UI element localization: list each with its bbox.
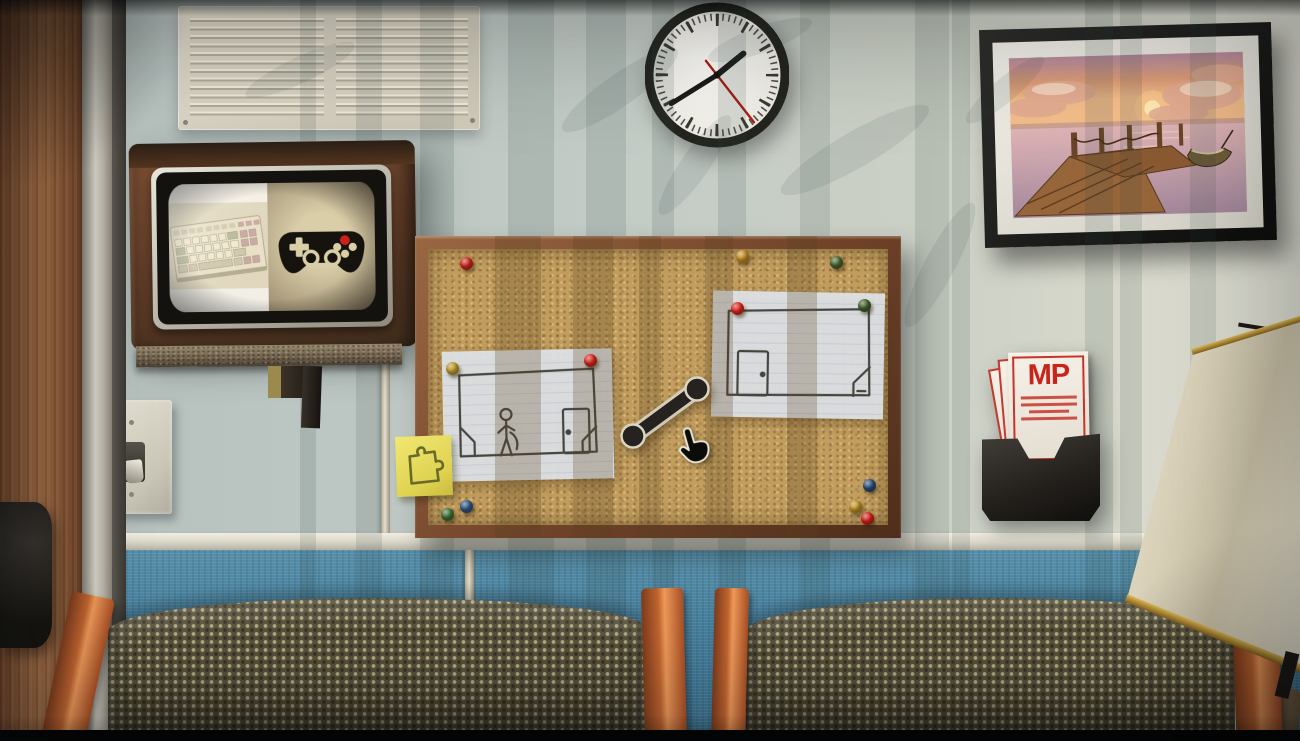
push-pin[interactable] [861, 512, 874, 525]
push-pin[interactable] [441, 508, 454, 521]
game-scene: MP [0, 0, 1300, 741]
chair-back-left [108, 598, 645, 733]
push-pin[interactable] [731, 302, 744, 315]
push-pin[interactable] [460, 257, 473, 270]
chair-post [641, 587, 687, 741]
push-pin[interactable] [830, 256, 843, 269]
wall-dispenser [0, 502, 52, 648]
push-pin[interactable] [460, 500, 473, 513]
pamphlet-logo: MP [1008, 360, 1088, 390]
push-pin[interactable] [446, 362, 459, 375]
letterbox-bar [0, 730, 1300, 741]
push-pin[interactable] [736, 250, 749, 263]
push-pin[interactable] [858, 299, 871, 312]
push-pin[interactable] [849, 500, 862, 513]
chair-back-right [746, 598, 1235, 733]
push-pin[interactable] [584, 354, 597, 367]
chair-post [711, 588, 749, 741]
push-pin[interactable] [863, 479, 876, 492]
